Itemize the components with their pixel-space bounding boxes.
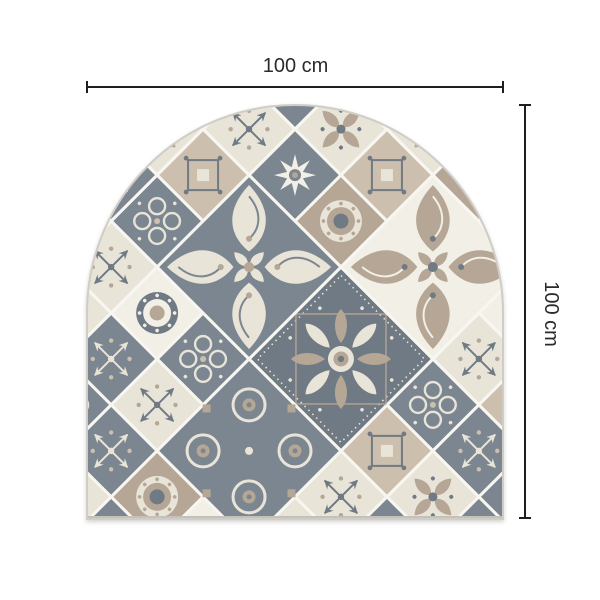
tile: [157, 589, 249, 600]
tile: [0, 221, 65, 313]
height-dimension-line: [524, 105, 526, 519]
tile-patchwork: [0, 0, 600, 600]
tile: [433, 37, 525, 129]
tile: [341, 589, 433, 600]
tile: [525, 129, 600, 221]
tile: [0, 175, 19, 267]
tile: [65, 37, 157, 129]
product-dimension-diagram: 100 cm 100 cm: [0, 0, 600, 600]
tile: [111, 543, 203, 600]
tile: [341, 0, 433, 37]
tile: [571, 359, 600, 451]
tile: [249, 0, 341, 37]
width-dimension-line: [87, 86, 504, 88]
tile: [157, 0, 249, 37]
tile: [0, 359, 19, 451]
tile: [0, 267, 19, 359]
tile: [203, 543, 295, 600]
height-dimension-label: 100 cm: [540, 281, 562, 347]
tile: [295, 543, 387, 600]
tile: [0, 405, 65, 497]
arched-tile-mat: [0, 0, 600, 600]
width-dimension-tick-left: [86, 81, 88, 93]
width-dimension-label: 100 cm: [87, 55, 504, 77]
tile: [571, 267, 600, 359]
tile: [0, 313, 65, 405]
tile: [19, 83, 111, 175]
height-dimension-tick-bottom: [519, 517, 531, 519]
width-dimension-tick-right: [502, 81, 504, 93]
tile: [387, 543, 479, 600]
height-dimension-tick-top: [519, 104, 531, 106]
tile: [249, 589, 341, 600]
tile: [0, 129, 65, 221]
tile: [571, 175, 600, 267]
tile: [525, 405, 600, 497]
tile: [525, 313, 600, 405]
tile: [525, 221, 600, 313]
